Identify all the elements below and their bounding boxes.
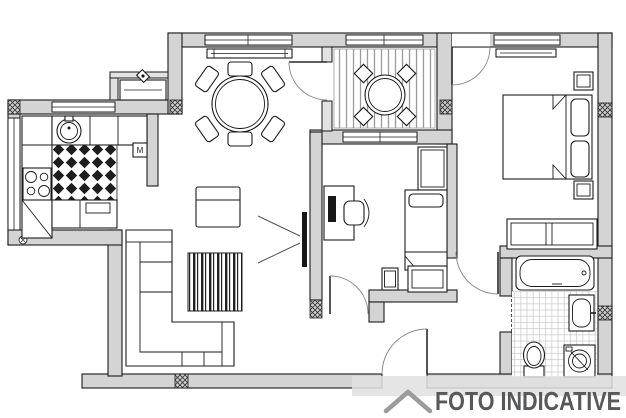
balcony-table <box>365 75 405 115</box>
column-hatch <box>598 306 612 320</box>
radiator <box>496 49 556 57</box>
window-balcony <box>346 35 423 45</box>
wall-balcony-partition-bottom <box>322 101 332 131</box>
dining-chair <box>194 115 219 143</box>
watermark: FOTO INDICATIVE <box>352 376 626 416</box>
dining-table <box>212 76 268 132</box>
washbasin <box>569 295 596 331</box>
stove <box>23 168 51 200</box>
dresser <box>382 268 398 290</box>
toilet <box>524 342 545 377</box>
dining-chair <box>228 132 252 146</box>
washing-machine <box>564 345 595 377</box>
room-kitchen: M <box>22 116 147 238</box>
pillow <box>409 194 443 207</box>
column-hatch <box>8 100 20 114</box>
window-kitchen-top <box>52 102 115 112</box>
wall-kitchen-right <box>147 114 158 186</box>
room-small-bedroom <box>324 147 447 292</box>
door-master-bedroom <box>456 252 498 294</box>
wall-bottom-left <box>82 374 382 388</box>
rug <box>188 253 242 311</box>
room-master-bedroom <box>503 72 597 249</box>
wardrobe <box>507 219 597 249</box>
nightstand <box>574 72 593 90</box>
column-hatch <box>440 100 452 114</box>
dresser-wide <box>408 266 447 292</box>
door-opening <box>452 34 490 47</box>
armchair <box>196 187 240 227</box>
column-hatch <box>598 103 612 117</box>
wall-balcony-right <box>437 33 452 144</box>
dining-area <box>194 62 285 146</box>
wall-hall-stub <box>369 302 384 322</box>
window-smallbed <box>343 132 417 142</box>
dining-chair <box>260 115 285 143</box>
watermark-text: FOTO INDICATIVE <box>435 386 621 416</box>
floor-plan: M <box>0 0 626 418</box>
room-living <box>126 187 307 366</box>
tv <box>258 212 307 267</box>
wall-balcony-partition-top <box>322 47 332 62</box>
column-hatch <box>310 300 322 318</box>
room-balcony <box>334 49 435 128</box>
radiator <box>207 49 292 58</box>
dining-chair <box>260 65 285 93</box>
wall-smallbed-right <box>447 144 457 258</box>
wall-tv-partition <box>310 132 322 300</box>
door-balcony <box>289 62 327 100</box>
room-bathroom <box>512 256 597 377</box>
office-chair <box>344 199 369 227</box>
double-bed <box>503 95 592 179</box>
wardrobe-small <box>418 147 447 190</box>
floor-plan-svg: M <box>0 0 626 418</box>
pillow <box>571 99 589 136</box>
wall-right <box>598 33 612 388</box>
dining-chair <box>228 62 252 76</box>
wall-bathroom-left-a <box>500 258 512 296</box>
column-hatch <box>170 100 182 114</box>
single-bed <box>405 190 447 270</box>
pillow <box>571 141 589 177</box>
boiler-marker: M <box>137 146 144 155</box>
door-small-bedroom <box>330 276 368 314</box>
window-kitchen-left <box>8 118 20 230</box>
bathtub <box>516 256 594 290</box>
dining-chair <box>194 65 219 93</box>
wall-living-left <box>108 230 122 376</box>
kitchen-tile-floor <box>52 145 117 200</box>
wall-bathroom-left-b <box>500 332 512 374</box>
door-master-bedroom-french <box>452 34 490 85</box>
boiler: M <box>133 143 147 157</box>
column-hatch <box>175 374 188 388</box>
nightstand <box>574 181 593 199</box>
kitchen-counter-bottom <box>52 200 117 228</box>
